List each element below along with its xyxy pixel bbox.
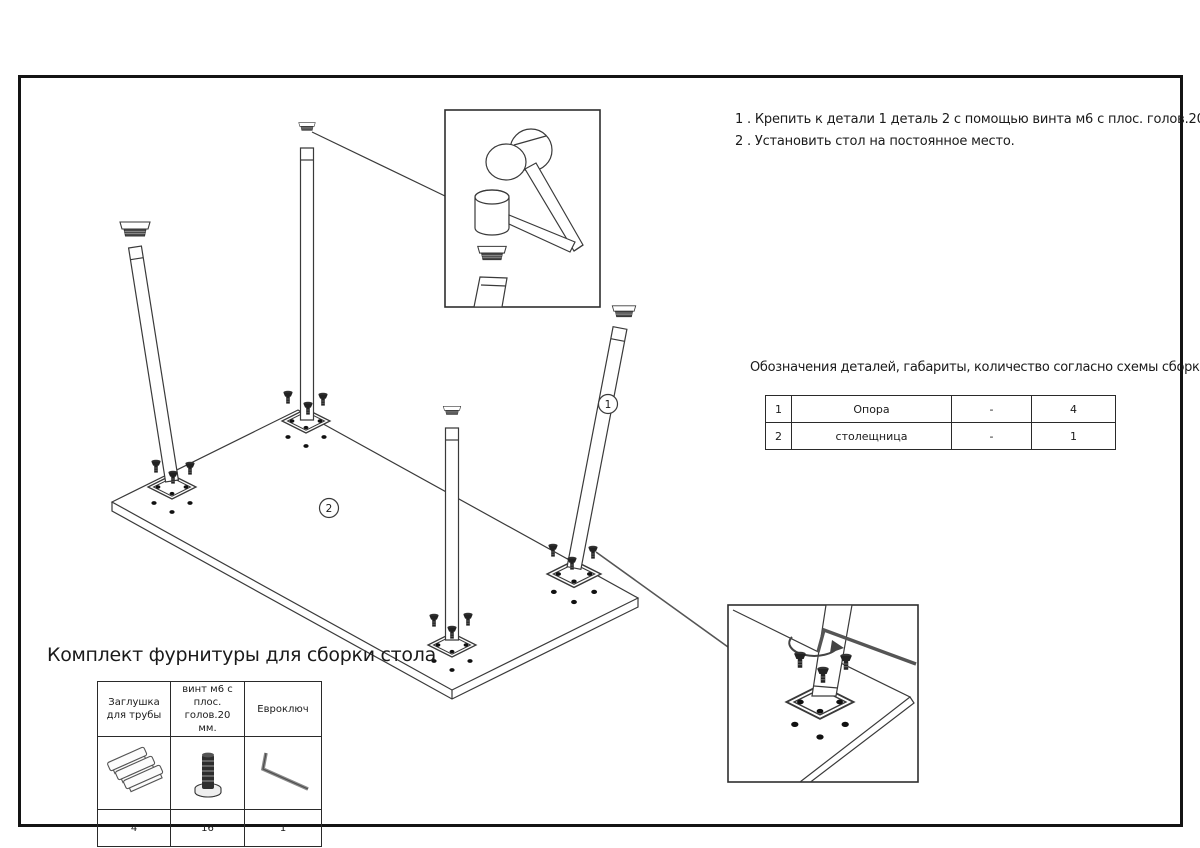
callout-leg-screwing (728, 605, 918, 787)
hw-qty-screw: 16 (171, 810, 245, 847)
leg-front-left (129, 246, 179, 482)
assembly-instructions: 1 . Крепить к детали 1 деталь 2 с помощь… (735, 109, 1200, 153)
hardware-header-row: Заглушка для трубы винт м6 с плос. голов… (98, 682, 322, 737)
svg-text:1: 1 (605, 399, 612, 411)
part-num: 2 (766, 423, 792, 450)
part-label-1: 1 (599, 395, 618, 414)
parts-table: 1 Опора - 4 2 столещница - 1 (765, 395, 1116, 450)
leg-middle (446, 428, 459, 640)
screws (151, 391, 597, 639)
table-row: 2 столещница - 1 (766, 423, 1116, 450)
hardware-kit-table: Заглушка для трубы винт м6 с плос. голов… (97, 681, 322, 847)
hex-key-icon (248, 741, 318, 803)
instruction-step-1: 1 . Крепить к детали 1 деталь 2 с помощь… (735, 109, 1200, 131)
hardware-kit-title: Комплект фурнитуры для сборки стола (47, 644, 436, 666)
part-dims: - (952, 423, 1032, 450)
part-qty: 4 (1032, 396, 1116, 423)
hw-qty-key: 1 (245, 810, 322, 847)
part-name: столещница (792, 423, 952, 450)
instruction-step-2: 2 . Установить стол на постоянное место. (735, 131, 1200, 153)
part-num: 1 (766, 396, 792, 423)
flat-head-screw-icon (175, 741, 241, 803)
hardware-image-row (98, 737, 322, 810)
part-qty: 1 (1032, 423, 1116, 450)
callout-cap-hammering (445, 110, 600, 307)
hw-label-screw: винт м6 с плос. голов.20 мм. (171, 682, 245, 737)
table-row: 1 Опора - 4 (766, 396, 1116, 423)
leg-right (567, 327, 627, 570)
hw-label-key: Евроключ (245, 682, 322, 737)
leg-back (301, 148, 314, 420)
part-dims: - (952, 396, 1032, 423)
hw-qty-cap: 4 (98, 810, 171, 847)
pipe-cap-stack-icon (101, 741, 167, 803)
svg-text:2: 2 (326, 503, 333, 515)
parts-table-title: Обозначения деталей, габариты, количеств… (750, 360, 1200, 375)
hw-label-cap: Заглушка для трубы (98, 682, 171, 737)
part-label-2: 2 (320, 499, 339, 518)
hardware-qty-row: 4 16 1 (98, 810, 322, 847)
part-name: Опора (792, 396, 952, 423)
